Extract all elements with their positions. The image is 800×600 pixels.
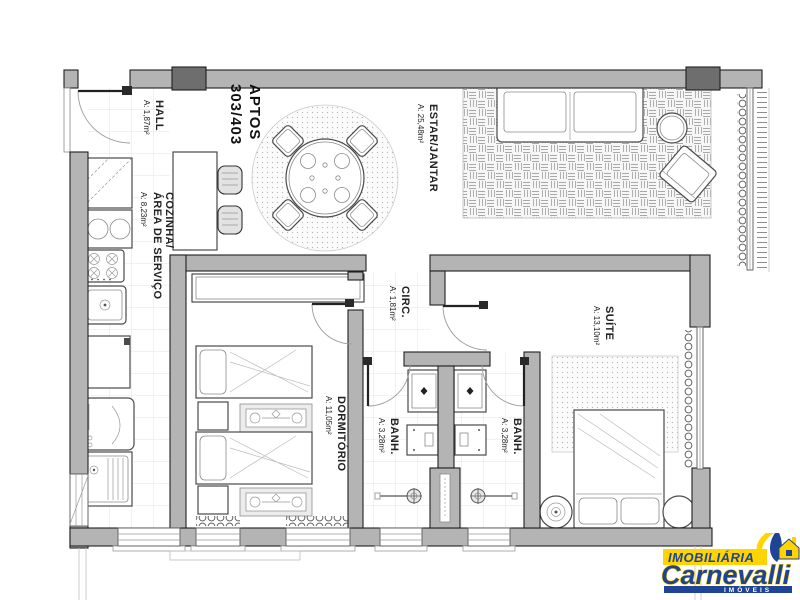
svg-text:A: 3,28m²: A: 3,28m²	[377, 418, 386, 453]
hall-glazing	[64, 88, 70, 152]
svg-text:COZINHA/: COZINHA/	[163, 192, 175, 248]
double-bed	[574, 410, 664, 528]
structural-column	[686, 67, 720, 90]
svg-text:A: 1,81m²: A: 1,81m²	[388, 286, 397, 321]
plate	[335, 188, 350, 203]
laundry-tank	[82, 452, 132, 506]
double-sink	[84, 210, 132, 248]
structural-column	[172, 67, 206, 90]
svg-text:ESTAR/JANTAR: ESTAR/JANTAR	[427, 104, 439, 192]
pillow	[579, 498, 617, 524]
single-bed	[196, 346, 312, 398]
nightstand	[198, 486, 228, 514]
living-glazing	[737, 88, 769, 272]
window	[113, 528, 185, 551]
service-window	[70, 474, 88, 526]
logo-main-text: Carnevalli	[661, 560, 791, 590]
room-label-banh-esq: BANH. A: 3,28m²	[377, 418, 400, 455]
nightstand	[198, 402, 228, 430]
room-label-suite: SUÍTE A: 13,10m²	[592, 306, 616, 345]
suite-furniture	[540, 330, 695, 528]
svg-text:A: 1,87m²: A: 1,87m²	[142, 100, 151, 135]
kitchen-cabinet	[84, 158, 132, 208]
pillow	[200, 436, 226, 480]
breakfast-bar	[173, 152, 217, 250]
svg-text:A: 11,05m²: A: 11,05m²	[324, 396, 333, 435]
toilet	[407, 425, 438, 455]
room-label-circ: CIRC. A: 1,81m²	[388, 286, 411, 321]
bedside-rug	[240, 404, 312, 432]
window	[191, 528, 245, 551]
svg-text:BANH.: BANH.	[388, 418, 400, 455]
shower-box	[408, 370, 440, 412]
title-number: 303/403	[227, 84, 244, 145]
svg-text:ÁREA DE SERVIÇO: ÁREA DE SERVIÇO	[151, 192, 164, 300]
single-bed	[196, 432, 312, 484]
bar-stool	[218, 166, 242, 194]
brise-louvers	[757, 88, 767, 270]
title-name: APTOS	[246, 84, 263, 140]
svg-text:BANH.: BANH.	[511, 418, 523, 455]
dining-set	[252, 105, 398, 251]
floor-plan-page: APTOS 303/403 HALL A: 1,87m² COZINHA/ ÁR…	[0, 0, 800, 600]
window	[463, 528, 515, 551]
sofa	[497, 84, 643, 142]
pillow	[200, 350, 226, 394]
washing-machine	[84, 398, 134, 450]
bedside-rug	[240, 488, 312, 516]
plate	[301, 188, 316, 203]
curtain	[684, 330, 693, 468]
pillow	[621, 498, 659, 524]
plate	[301, 154, 316, 169]
bar-stool	[218, 206, 242, 234]
round-nightstand	[663, 496, 695, 528]
suite-window	[697, 327, 703, 469]
svg-text:A: 3,28m²: A: 3,28m²	[500, 418, 509, 453]
refrigerator	[82, 336, 130, 388]
curtain	[196, 516, 240, 526]
ventilation-duct	[430, 468, 460, 528]
svg-text:SUÍTE: SUÍTE	[603, 306, 616, 340]
round-nightstand-lamp	[540, 496, 572, 528]
shower-box	[454, 370, 486, 412]
logo-tagline-text: IMÓVEIS	[724, 585, 772, 594]
svg-text:A: 25,48m²: A: 25,48m²	[416, 104, 425, 143]
window	[375, 528, 427, 551]
svg-text:CIRC.: CIRC.	[399, 286, 411, 318]
svg-text:A: 8,23m²: A: 8,23m²	[139, 192, 148, 227]
svg-text:DORMITÓRIO: DORMITÓRIO	[335, 396, 348, 472]
floor-plan-drawing: APTOS 303/403 HALL A: 1,87m² COZINHA/ ÁR…	[0, 0, 800, 600]
kitchen-sink	[84, 286, 126, 324]
room-label-hall: HALL A: 1,87m²	[142, 100, 165, 135]
svg-text:A: 13,10m²: A: 13,10m²	[592, 306, 601, 345]
living-area	[463, 84, 718, 218]
room-label-banh-dir: BANH. A: 3,28m²	[500, 418, 523, 455]
svg-text:HALL: HALL	[153, 100, 165, 131]
plate	[335, 154, 350, 169]
curtain	[286, 516, 350, 526]
curtain	[737, 94, 746, 266]
toilet	[455, 425, 486, 455]
window	[281, 528, 355, 551]
